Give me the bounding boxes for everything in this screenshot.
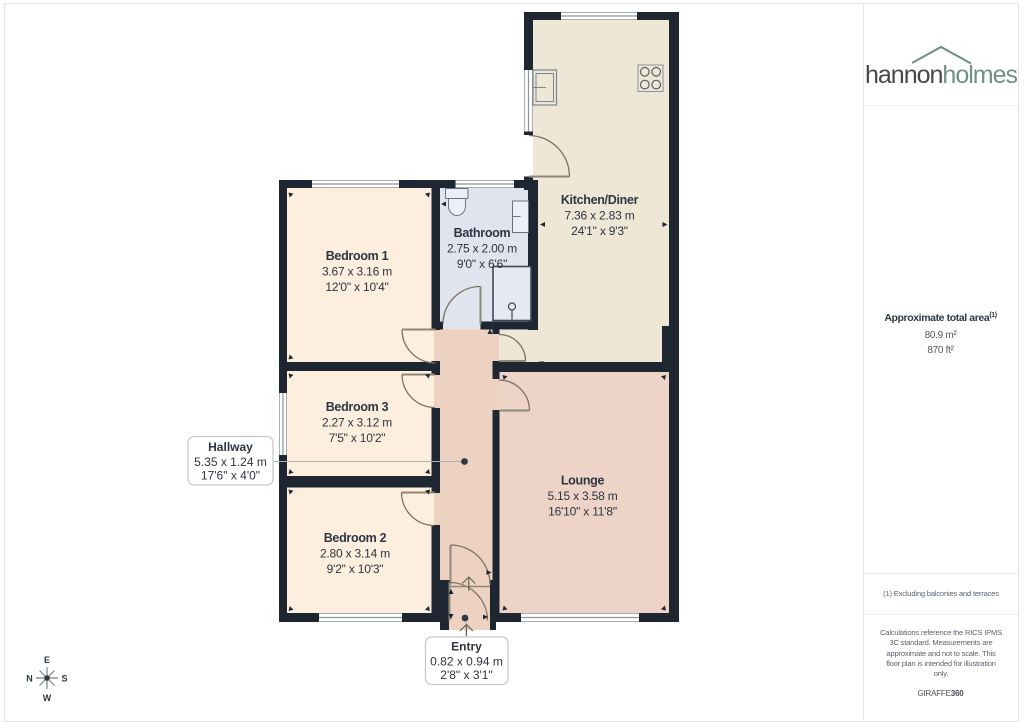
svg-text:0.82 x 0.94 m: 0.82 x 0.94 m (430, 655, 503, 669)
svg-text:5.15 x 3.58 m: 5.15 x 3.58 m (547, 489, 617, 503)
svg-text:N: N (26, 674, 33, 684)
svg-text:Entry: Entry (451, 640, 482, 654)
svg-text:Bedroom 1: Bedroom 1 (326, 249, 389, 263)
svg-text:2.75 x 2.00 m: 2.75 x 2.00 m (447, 242, 517, 256)
svg-text:12'0" x 10'4": 12'0" x 10'4" (325, 280, 388, 294)
svg-text:2'8" x 3'1": 2'8" x 3'1" (440, 668, 492, 682)
svg-text:2.27 x 3.12 m: 2.27 x 3.12 m (322, 416, 392, 430)
svg-text:3.67 x 3.16 m: 3.67 x 3.16 m (322, 265, 392, 279)
svg-text:9'2" x 10'3": 9'2" x 10'3" (327, 562, 384, 576)
svg-text:9'0" x 6'6": 9'0" x 6'6" (457, 257, 507, 271)
svg-text:7.36 x 2.83 m: 7.36 x 2.83 m (564, 209, 634, 223)
svg-text:2.80 x 3.14 m: 2.80 x 3.14 m (320, 547, 390, 561)
svg-text:Bedroom 2: Bedroom 2 (324, 531, 387, 545)
svg-text:Hallway: Hallway (208, 440, 253, 454)
svg-text:S: S (61, 674, 67, 684)
svg-text:W: W (43, 693, 52, 703)
svg-text:Bathroom: Bathroom (454, 226, 511, 240)
svg-text:16'10" x 11'8": 16'10" x 11'8" (548, 505, 617, 519)
svg-text:Bedroom 3: Bedroom 3 (326, 400, 389, 414)
svg-text:Kitchen/Diner: Kitchen/Diner (561, 193, 639, 207)
svg-text:5.35 x 1.24 m: 5.35 x 1.24 m (194, 455, 267, 469)
svg-text:Lounge: Lounge (561, 474, 605, 488)
svg-text:7'5" x 10'2": 7'5" x 10'2" (329, 431, 386, 445)
svg-text:17'6" x 4'0": 17'6" x 4'0" (201, 469, 260, 483)
svg-text:E: E (44, 655, 50, 665)
svg-text:24'1" x 9'3": 24'1" x 9'3" (571, 224, 628, 238)
